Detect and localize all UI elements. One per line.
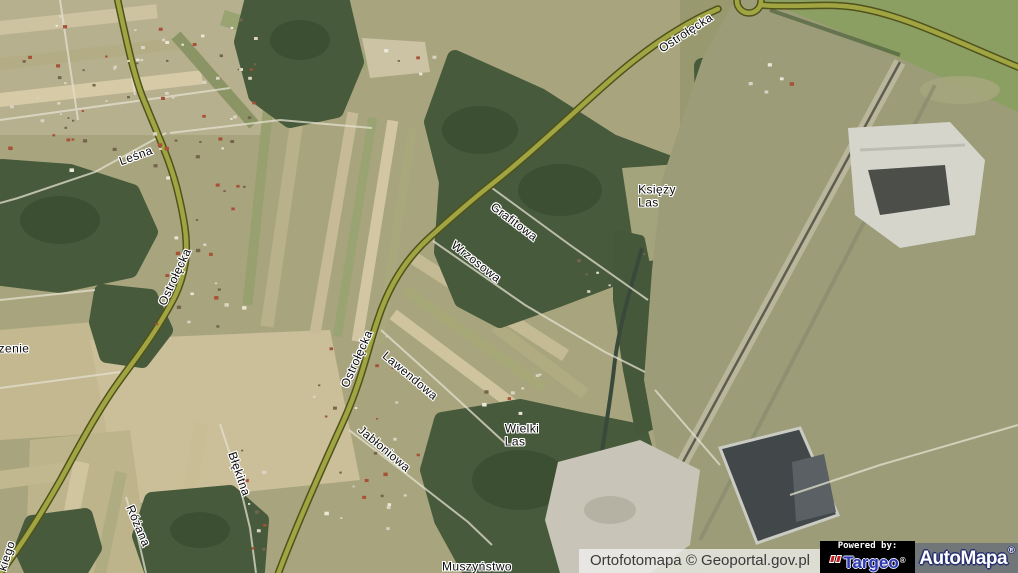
automapa-registered-mark: ® [1008, 545, 1015, 555]
map-viewport[interactable]: OstrołęckaLeśnaOstrołęckaGrafitowaWrzoso… [0, 0, 1018, 573]
automapa-wordmark: AutoMapa [919, 549, 1007, 568]
aerial-imagery [0, 0, 1018, 573]
targeo-logo[interactable]: Powered by: Targeo ® [820, 541, 915, 573]
powered-by-label: Powered by: [838, 541, 898, 552]
map-application: OstrołęckaLeśnaOstrołęckaGrafitowaWrzoso… [0, 0, 1018, 573]
targeo-registered-mark: ® [900, 556, 906, 565]
targeo-wordmark: Targeo [843, 554, 898, 571]
automapa-logo[interactable]: AutoMapa ® [915, 543, 1018, 573]
map-attribution: Ortofotomapa © Geoportal.gov.pl [579, 549, 820, 573]
targeo-quote-icon [835, 555, 842, 563]
bottom-bar: Ortofotomapa © Geoportal.gov.pl Powered … [579, 541, 1018, 573]
